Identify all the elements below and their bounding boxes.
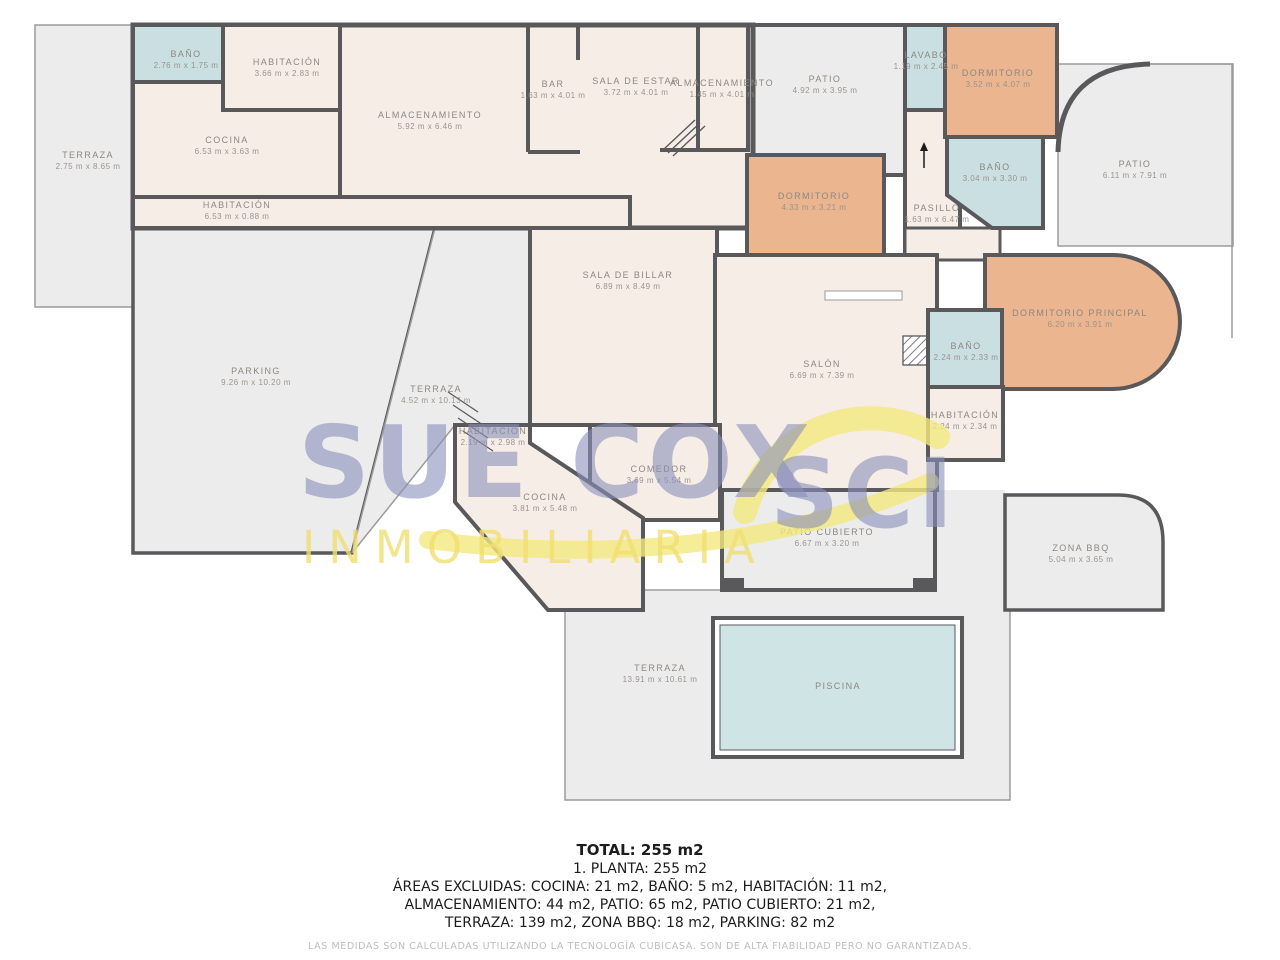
room-bano-salon-dims: 2.24 m x 2.33 m — [934, 353, 999, 362]
room-terraza-mid-label: TERRAZA — [410, 384, 462, 394]
room-pasillo-dims: 1.63 m x 6.47 m — [905, 215, 970, 224]
summary-disclaimer: LAS MEDIDAS SON CALCULADAS UTILIZANDO LA… — [0, 941, 1280, 952]
room-bar-dims: 1.63 m x 4.01 m — [521, 91, 586, 100]
room-patio-top-dims: 4.92 m x 3.95 m — [793, 86, 858, 95]
brand-name-sci: SCI — [770, 438, 957, 550]
brand-name-main: SUE COX — [298, 404, 814, 521]
room-habitacion-tl-dims: 3.66 m x 2.83 m — [255, 69, 320, 78]
room-sala-billar-label: SALA DE BILLAR — [583, 270, 674, 280]
room-salon-label: SALÓN — [803, 359, 841, 369]
room-patio-top-label: PATIO — [809, 74, 842, 84]
pillar-right-icon — [913, 578, 935, 590]
room-terraza-left-label: TERRAZA — [62, 150, 114, 160]
room-terraza-bottom-label: TERRAZA — [634, 663, 686, 673]
room-almacenamiento-dims: 5.92 m x 6.46 m — [398, 122, 463, 131]
room-dormitorio-principal-dims: 6.20 m x 3.91 m — [1048, 320, 1113, 329]
room-pasillo-label: PASILLO — [914, 203, 961, 213]
room-patio-right-dims: 6.11 m x 7.91 m — [1103, 171, 1167, 180]
room-sala-billar-dims: 6.89 m x 8.49 m — [596, 282, 661, 291]
area-summary: TOTAL: 255 m2 1. PLANTA: 255 m2 ÁREAS EX… — [0, 840, 1280, 952]
room-habitacion-tl-label: HABITACIÓN — [253, 57, 321, 67]
summary-excluded-line1: ÁREAS EXCLUIDAS: COCINA: 21 m2, BAÑO: 5 … — [0, 878, 1280, 896]
room-dormitorio-mid-dims: 4.33 m x 3.21 m — [782, 203, 847, 212]
room-bano-salon-label: BAÑO — [950, 341, 981, 351]
room-dormitorio-top-dims: 3.52 m x 4.07 m — [966, 80, 1031, 89]
room-almacenamiento-small-dims: 1.45 m x 4.01 m — [690, 90, 755, 99]
chimney-hatch-icon — [903, 336, 928, 365]
room-cocina-tl-dims: 6.53 m x 3.63 m — [195, 147, 260, 156]
room-habitacion-narrow-dims: 6.53 m x 0.88 m — [205, 212, 270, 221]
room-almacenamiento-label: ALMACENAMIENTO — [378, 110, 482, 120]
room-bano-tr-label: BAÑO — [979, 162, 1010, 172]
room-terraza-left-dims: 2.75 m x 8.65 m — [56, 162, 121, 171]
room-habitacion-right-label: HABITACIÓN — [931, 410, 999, 420]
room-habitacion-narrow-label: HABITACIÓN — [203, 200, 271, 210]
summary-total: TOTAL: 255 m2 — [0, 840, 1280, 860]
room-dormitorio-mid-label: DORMITORIO — [778, 191, 850, 201]
room-sala-billar-shape — [530, 228, 717, 425]
summary-floor: 1. PLANTA: 255 m2 — [0, 860, 1280, 878]
summary-excluded-line2: ALMACENAMIENTO: 44 m2, PATIO: 65 m2, PAT… — [0, 896, 1280, 914]
room-patio-right-label: PATIO — [1119, 159, 1152, 169]
room-zona-bbq-label: ZONA BBQ — [1052, 543, 1109, 553]
room-bar-label: BAR — [542, 79, 565, 89]
room-sala-estar-label: SALA DE ESTAR — [592, 76, 680, 86]
room-cocina-tl-label: COCINA — [205, 135, 248, 145]
room-parking-dims: 9.26 m x 10.20 m — [221, 378, 291, 387]
brand-watermark: SUE COX SCI INMOBILIARIA — [298, 404, 957, 574]
room-patio-right-shape — [1058, 64, 1233, 246]
room-terraza-bottom-dims: 13.91 m x 10.61 m — [623, 675, 698, 684]
room-almacenamiento-small-label: ALMACENAMIENTO — [670, 78, 774, 88]
summary-excluded-line3: TERRAZA: 139 m2, ZONA BBQ: 18 m2, PARKIN… — [0, 914, 1280, 932]
room-dormitorio-top-label: DORMITORIO — [962, 68, 1034, 78]
room-zona-bbq-dims: 5.04 m x 3.65 m — [1049, 555, 1114, 564]
room-bano-tl-label: BAÑO — [170, 49, 201, 59]
pillar-left-icon — [722, 578, 744, 590]
room-dormitorio-principal-label: DORMITORIO PRINCIPAL — [1012, 308, 1148, 318]
room-lavabo-label: LAVABO — [904, 50, 947, 60]
room-lavabo-dims: 1.19 m x 2.45 m — [894, 62, 959, 71]
room-parking-label: PARKING — [231, 366, 281, 376]
room-bano-tr-dims: 3.04 m x 3.30 m — [963, 174, 1028, 183]
brand-tagline: INMOBILIARIA — [302, 521, 768, 574]
floor-plan-drawing: TERRAZA 2.75 m x 8.65 m BAÑO 2.76 m x 1.… — [0, 0, 1280, 830]
window-band-salon — [825, 291, 902, 300]
room-habitacion-tl-shape — [223, 25, 340, 110]
room-sala-estar-dims: 3.72 m x 4.01 m — [604, 88, 669, 97]
room-patio-top-shape — [753, 25, 905, 175]
room-salon-dims: 6.69 m x 7.39 m — [790, 371, 855, 380]
floor-plan-page: TERRAZA 2.75 m x 8.65 m BAÑO 2.76 m x 1.… — [0, 0, 1280, 960]
room-piscina-label: PISCINA — [815, 681, 861, 691]
room-bano-tl-dims: 2.76 m x 1.75 m — [154, 61, 219, 70]
